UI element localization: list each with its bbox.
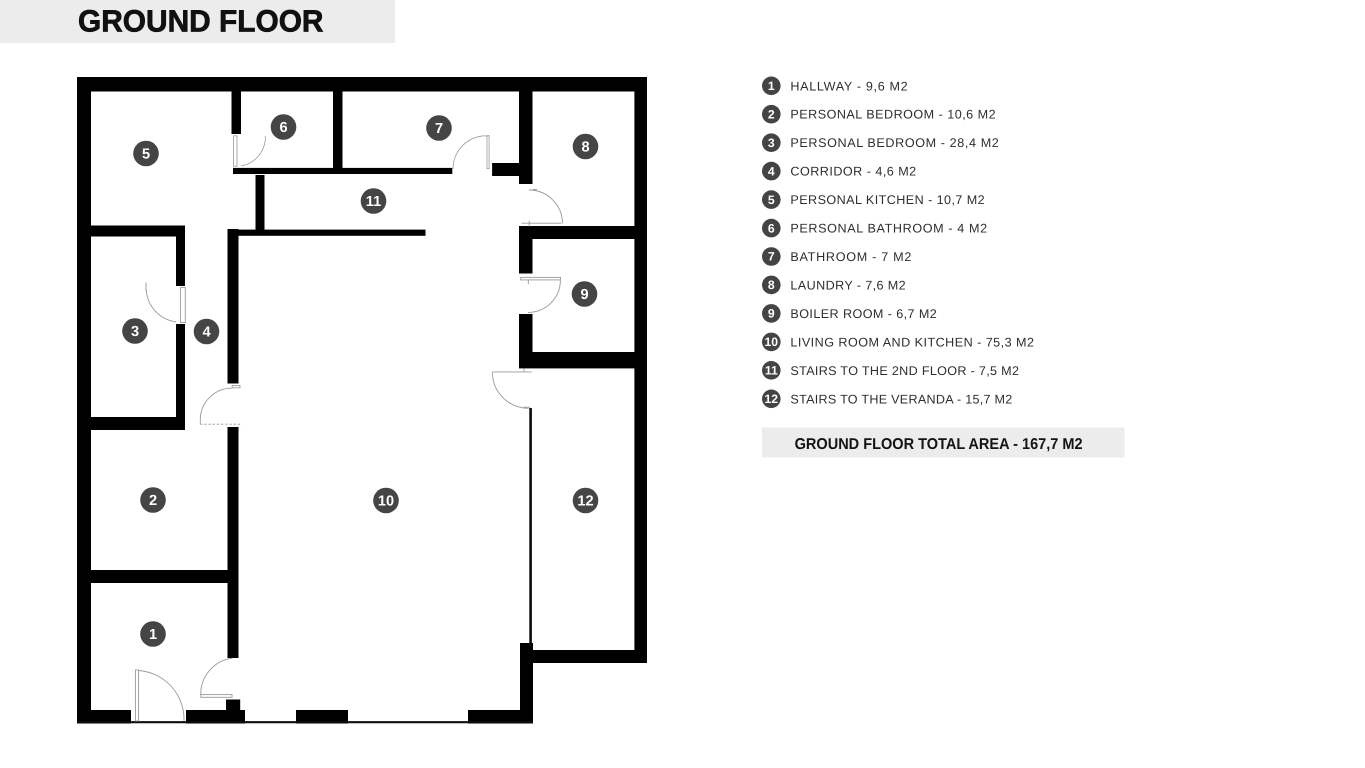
svg-text:CORRIDOR - 4,6 M2: CORRIDOR - 4,6 M2 xyxy=(790,165,916,179)
svg-text:8: 8 xyxy=(581,139,589,155)
svg-text:BOILER ROOM - 6,7 M2: BOILER ROOM - 6,7 M2 xyxy=(790,307,936,321)
svg-text:8: 8 xyxy=(768,278,775,292)
svg-text:PERSONAL BEDROOM - 10,6 M2: PERSONAL BEDROOM - 10,6 M2 xyxy=(790,108,995,122)
svg-text:PERSONAL BATHROOM - 4 M2: PERSONAL BATHROOM - 4 M2 xyxy=(790,222,987,236)
svg-text:9: 9 xyxy=(768,307,775,321)
svg-text:BATHROOM - 7 M2: BATHROOM - 7 M2 xyxy=(790,250,911,264)
svg-text:PERSONAL KITCHEN - 10,7 M2: PERSONAL KITCHEN - 10,7 M2 xyxy=(790,193,984,207)
svg-text:HALLWAY - 9,6 M2: HALLWAY - 9,6 M2 xyxy=(790,79,907,93)
svg-text:6: 6 xyxy=(279,120,287,136)
svg-text:4: 4 xyxy=(202,324,211,340)
svg-text:7: 7 xyxy=(768,250,775,264)
svg-text:10: 10 xyxy=(765,335,779,349)
svg-text:1: 1 xyxy=(768,79,775,93)
svg-text:12: 12 xyxy=(577,493,593,509)
svg-text:1: 1 xyxy=(149,627,157,643)
svg-text:GROUND FLOOR TOTAL AREA - 167,: GROUND FLOOR TOTAL AREA - 167,7 M2 xyxy=(795,436,1083,453)
svg-text:GROUND FLOOR: GROUND FLOOR xyxy=(78,4,324,39)
svg-text:STAIRS TO THE 2ND FLOOR - 7,5: STAIRS TO THE 2ND FLOOR - 7,5 M2 xyxy=(790,364,1019,378)
svg-text:2: 2 xyxy=(149,493,157,509)
svg-text:3: 3 xyxy=(131,324,139,340)
svg-text:11: 11 xyxy=(366,194,381,210)
svg-text:6: 6 xyxy=(768,221,775,235)
svg-text:5: 5 xyxy=(142,146,150,162)
svg-text:4: 4 xyxy=(768,164,775,178)
svg-text:11: 11 xyxy=(765,364,778,378)
svg-text:PERSONAL BEDROOM - 28,4 M2: PERSONAL BEDROOM - 28,4 M2 xyxy=(790,136,998,150)
svg-text:5: 5 xyxy=(768,193,775,207)
svg-text:2: 2 xyxy=(768,107,775,121)
svg-text:LIVING ROOM AND KITCHEN - 75,3: LIVING ROOM AND KITCHEN - 75,3 M2 xyxy=(790,335,1034,349)
svg-text:STAIRS TO THE VERANDA - 15,7 M: STAIRS TO THE VERANDA - 15,7 M2 xyxy=(790,392,1012,406)
svg-text:10: 10 xyxy=(378,493,394,509)
svg-text:7: 7 xyxy=(435,121,443,137)
svg-text:3: 3 xyxy=(768,136,775,150)
svg-text:12: 12 xyxy=(765,392,779,406)
svg-text:LAUNDRY - 7,6 M2: LAUNDRY - 7,6 M2 xyxy=(790,278,905,292)
svg-text:9: 9 xyxy=(580,287,588,303)
